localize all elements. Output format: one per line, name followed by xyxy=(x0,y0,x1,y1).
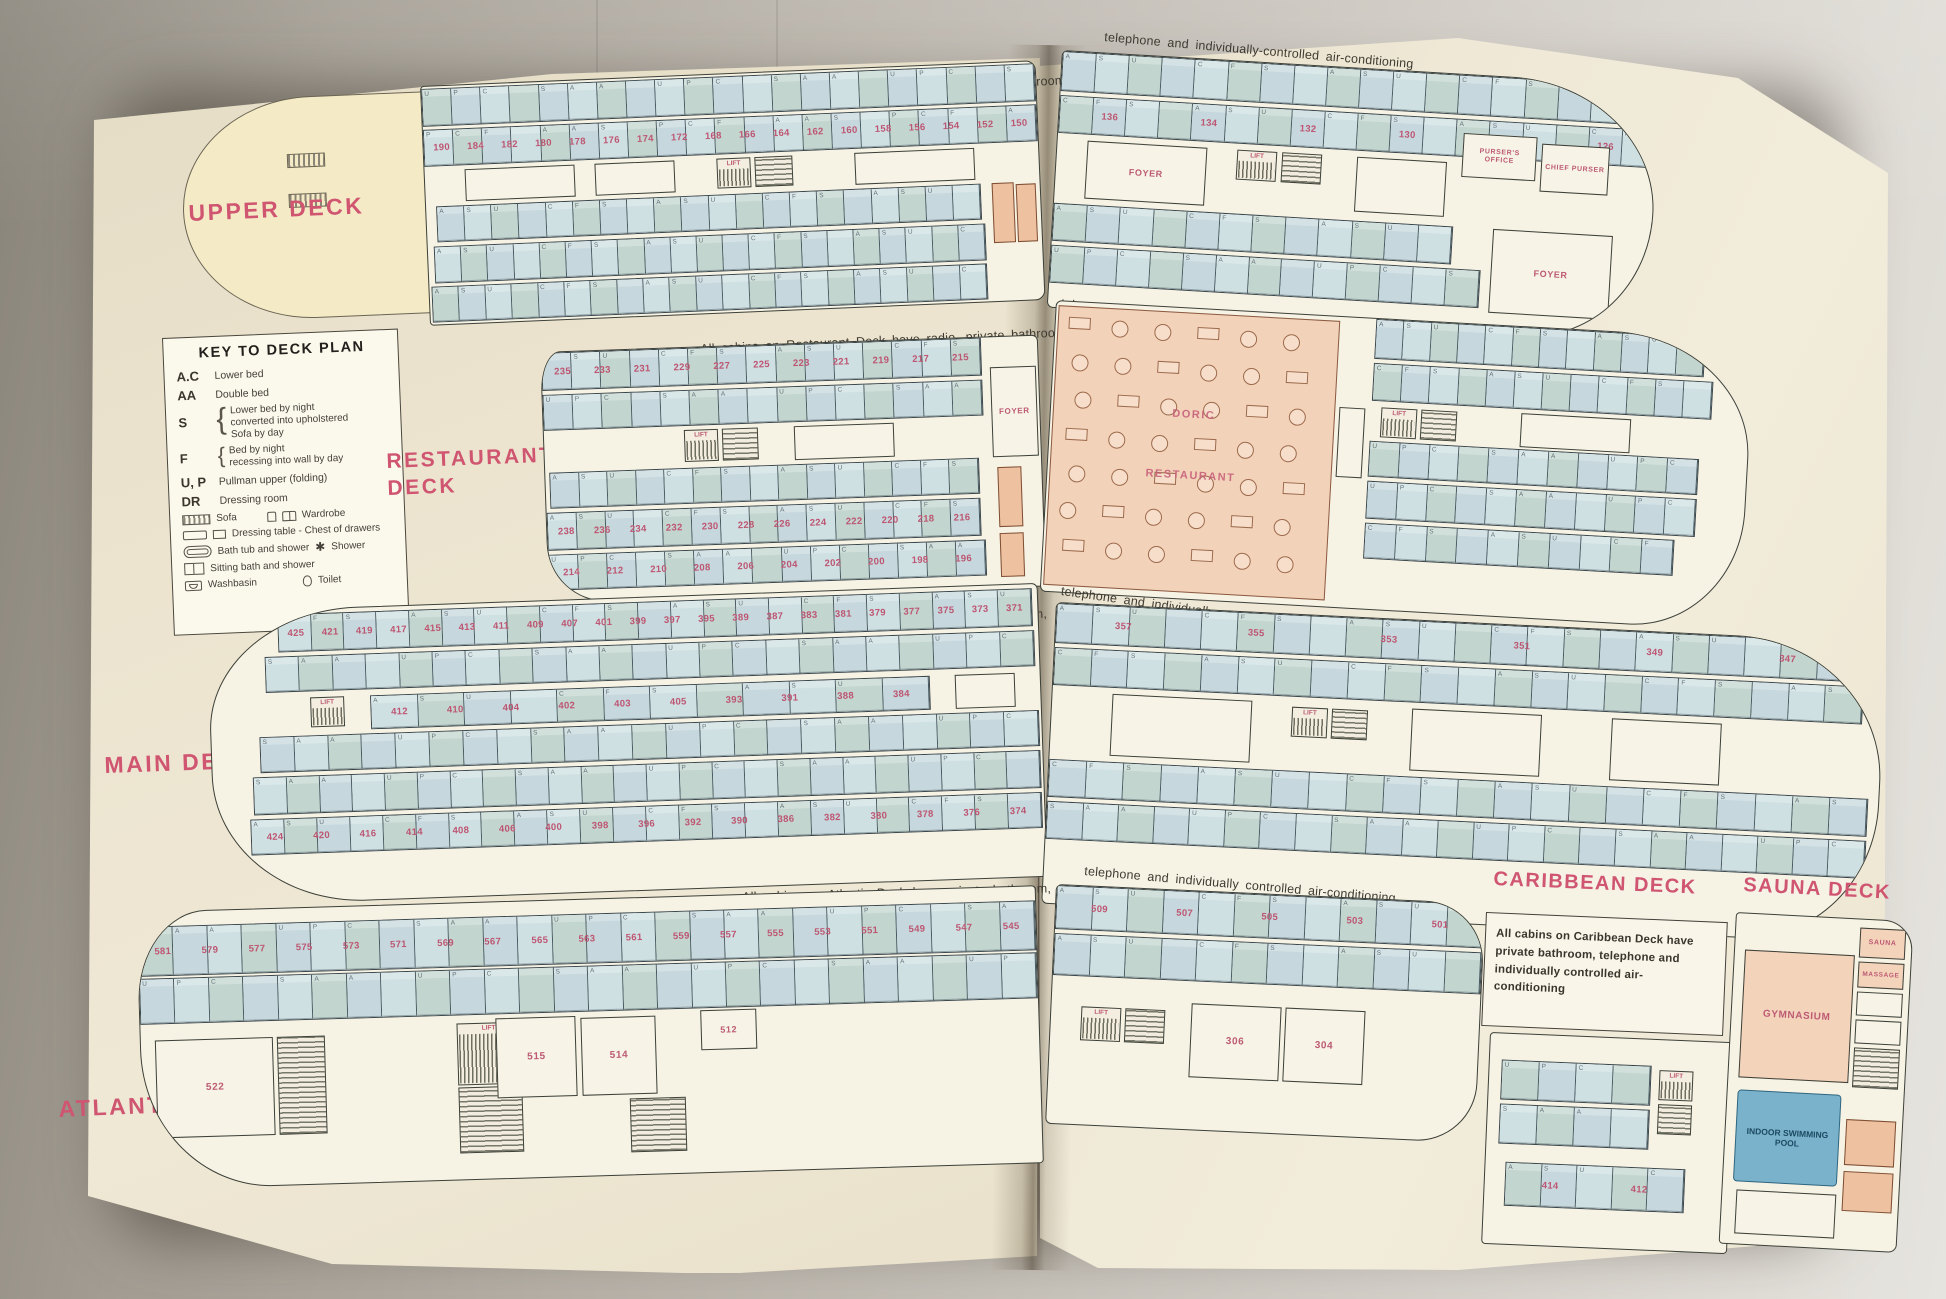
cabin-cell: P xyxy=(1083,248,1118,286)
sauna-deck-plan: GYMNASIUMSAUNAMASSAGEINDOOR SWIMMING POO… xyxy=(1719,912,1914,1253)
cabin-cell: A xyxy=(1247,257,1282,295)
cabin-cell: S xyxy=(1375,901,1412,945)
cabin-cell: U xyxy=(907,267,935,302)
dining-table xyxy=(1145,508,1163,526)
cabin-cell: A xyxy=(802,114,833,150)
cabin-cell: C xyxy=(1004,711,1039,746)
cabin-cell: U xyxy=(1648,335,1677,374)
cabin-cell: S xyxy=(1654,380,1684,418)
cabin-cell: F xyxy=(564,281,592,316)
lift-box: LIFT xyxy=(1080,1006,1122,1042)
room-outline: 304 xyxy=(1282,1008,1365,1086)
cabin-cell xyxy=(617,279,645,314)
cabin-cell xyxy=(1577,453,1609,489)
cabin-cell xyxy=(519,968,555,1013)
cabin-cell: P xyxy=(311,922,347,971)
cabin-cell xyxy=(748,388,778,423)
room-outline xyxy=(794,423,895,460)
room-label: 306 xyxy=(1226,1036,1245,1048)
cabin-cell: A xyxy=(1494,670,1532,708)
dining-table xyxy=(1157,361,1180,374)
cabin-cell: U xyxy=(487,244,515,280)
cabin-cell: U xyxy=(552,915,588,964)
dining-table xyxy=(1231,515,1254,528)
cabin-cell: F xyxy=(679,804,713,839)
cabin-cell: A xyxy=(566,646,601,681)
cabin-cell xyxy=(1417,225,1452,263)
cabin-cell xyxy=(768,719,803,754)
cabin-cell: A xyxy=(294,736,329,771)
cabin-cell: A xyxy=(869,716,904,751)
cabin-cell: A xyxy=(923,382,953,417)
sofa-icon xyxy=(182,514,210,525)
cabin-cell: S xyxy=(464,205,493,240)
cabin-cell: F xyxy=(1527,627,1565,667)
cabin-cell: C xyxy=(760,960,796,1005)
cabin-cell: C xyxy=(453,128,484,164)
cabin-cell: U xyxy=(1384,224,1419,262)
cabin-cell: U xyxy=(1604,495,1636,533)
key-code: DR xyxy=(181,493,220,510)
cabin-cell xyxy=(511,126,542,162)
cabin-cell: S xyxy=(965,902,1001,951)
dining-table xyxy=(1286,371,1309,384)
dining-table xyxy=(1059,502,1077,520)
cabin-cell xyxy=(863,342,893,379)
cabin-cell: P xyxy=(424,130,455,166)
cabin-cell: S xyxy=(650,685,698,719)
cabin-cell: U xyxy=(1418,622,1456,662)
cabin-cell: S xyxy=(1089,936,1126,978)
cabin-cell xyxy=(975,66,1006,103)
cabin-cell: P xyxy=(1508,824,1545,862)
cabin-cell: P xyxy=(917,68,948,105)
cabin-cell xyxy=(1579,828,1616,866)
cabin-cell: A xyxy=(1082,804,1119,842)
cabin-cell: F xyxy=(1383,776,1422,814)
atlantic-deck-plan-left: SAAUPCSAAUPCSAAUPCSA58157957757557357156… xyxy=(136,885,1044,1190)
dining-table xyxy=(1102,505,1125,518)
cabin-cell: A xyxy=(568,83,599,120)
cabin-cell xyxy=(1611,1167,1648,1210)
cabin-cell: F xyxy=(1091,650,1129,688)
cabin-cell xyxy=(513,243,541,279)
cabin-cell: F xyxy=(921,340,951,377)
cabin-cell: S xyxy=(605,603,639,640)
cabin-cell: S xyxy=(1267,944,1304,986)
dining-table xyxy=(1187,512,1205,530)
cabin-cell: S xyxy=(1092,606,1130,646)
cabin-cell: S xyxy=(547,809,581,844)
cabin-cell: S xyxy=(1091,888,1128,932)
cabin-cell: U xyxy=(1549,534,1582,570)
cabin-cell: S xyxy=(266,657,301,692)
cabin-cell: A xyxy=(1054,934,1091,976)
cabin-cell xyxy=(742,75,773,112)
cabin-cell: C xyxy=(1610,537,1643,573)
cabin-cell: A xyxy=(409,610,443,647)
cabin-cell xyxy=(932,226,960,262)
dining-table xyxy=(1071,354,1089,372)
cabin-cell: U xyxy=(835,503,865,540)
cabin-cell: A xyxy=(644,238,672,274)
cabin-cell: S xyxy=(831,113,862,149)
room-outline xyxy=(1520,413,1632,453)
cabin-cell: S xyxy=(681,196,710,231)
cabin-cell: S xyxy=(449,813,483,848)
restaurant-seating-area: DORICRESTAURANT xyxy=(1043,305,1340,600)
key-code: U, P xyxy=(181,474,220,491)
cabin-cell: S xyxy=(1351,222,1386,260)
cabin-cell xyxy=(614,765,648,802)
restaurant-deck-label: RESTAURANT DECK xyxy=(386,442,556,503)
cabin-cell: F xyxy=(573,604,607,641)
cabin-cell xyxy=(376,611,410,648)
washbasin-label: Washbasin xyxy=(208,577,258,590)
cabin-cell: A xyxy=(776,345,806,382)
washbasin-icon xyxy=(185,580,202,591)
key-code: F xyxy=(180,450,219,467)
dining-table xyxy=(1200,364,1218,382)
cabin-cell: A xyxy=(581,766,615,803)
staircase xyxy=(1124,1008,1166,1044)
cabin-cell xyxy=(512,283,540,318)
cabin-cell xyxy=(483,769,517,806)
cabin-cell: A xyxy=(778,465,808,500)
cabin-cell: S xyxy=(533,647,568,682)
room-label: PURSER'S OFFICE xyxy=(1463,147,1536,167)
cabin-cell: C xyxy=(763,193,792,228)
wardrobe-label: Wardrobe xyxy=(302,508,346,521)
cabin-cell: S xyxy=(665,551,695,586)
cabin-cell: P xyxy=(657,120,688,156)
service-room xyxy=(1841,1171,1893,1214)
cabin-cell: C xyxy=(1373,364,1403,402)
cabin-cell xyxy=(1456,529,1489,565)
cabin-cell: S xyxy=(1046,802,1083,840)
cabin-cell: C xyxy=(1575,1064,1614,1104)
key-code: AA xyxy=(177,387,216,404)
room-outline xyxy=(1609,718,1722,785)
cabin-cell: P xyxy=(811,546,841,581)
cabin-cell: P xyxy=(862,905,898,954)
cabin-cell xyxy=(1446,904,1483,948)
cabin-cell: S xyxy=(579,472,609,507)
cabin-cell xyxy=(1612,1065,1651,1105)
cabin-cell: F xyxy=(1817,641,1855,681)
cabin-cell xyxy=(632,724,667,759)
cabin-cell: U xyxy=(1313,261,1348,299)
bath-label: Bath tub and shower xyxy=(217,542,309,557)
cabin-cell: P xyxy=(806,386,836,421)
cabin-cell: F xyxy=(790,191,819,226)
cabin-cell xyxy=(1599,631,1637,671)
cabin-cell: F xyxy=(1491,78,1526,118)
cabin-cell xyxy=(1153,807,1190,845)
cabin-cell: A xyxy=(599,725,634,760)
cabin-cell xyxy=(1682,381,1712,419)
cabin-cell: U xyxy=(888,69,919,106)
shower-icon: ✱ xyxy=(315,541,326,553)
cabin-cell: A xyxy=(1000,901,1036,950)
room-outline xyxy=(1336,407,1366,478)
cabin-cell: S xyxy=(1524,80,1559,120)
cabin-cell: A xyxy=(1487,531,1520,567)
dining-table xyxy=(1197,327,1220,340)
upper-deck-plan-left: UPCSAAUPCSAAUPCSPCFAASPCFAASPCFA19018418… xyxy=(420,60,1046,326)
cabin-cell: F xyxy=(1231,942,1268,984)
cabin-cell: S xyxy=(898,543,928,578)
cabin-cell: A xyxy=(1056,886,1093,930)
cabin-cell xyxy=(1579,536,1612,572)
cabin-cell: P xyxy=(450,970,486,1015)
cabin-cell: A xyxy=(643,278,671,313)
cabin-cell: A xyxy=(1594,332,1623,371)
cabin-cell: C xyxy=(1324,112,1359,150)
cabin-cell: U xyxy=(708,195,737,230)
cabin-cell: F xyxy=(1218,214,1253,252)
cabin-cell: P xyxy=(966,632,1001,667)
cabin-cell: C xyxy=(646,806,680,841)
staircase xyxy=(277,1035,328,1134)
cabin-cell xyxy=(627,198,656,233)
cabin-cell xyxy=(749,506,779,543)
cabin-cell: A xyxy=(437,206,466,241)
cabin-cell: S xyxy=(461,245,489,281)
cabin-cell: P xyxy=(970,712,1005,747)
cabin-cell: C xyxy=(686,119,717,155)
cabin-cell: A xyxy=(371,695,419,729)
cabin-cell: U xyxy=(580,808,614,843)
cabin-cell: F xyxy=(416,814,450,849)
cabin-cell: P xyxy=(573,394,603,429)
cabin-cell: S xyxy=(1623,85,1658,125)
cabin-cell: C xyxy=(450,770,484,807)
cabin-cell: F xyxy=(1086,762,1125,800)
service-room xyxy=(992,182,1016,243)
cabin-cell: C xyxy=(733,640,768,675)
cabin-cell: S xyxy=(260,737,295,772)
cabin-cell: S xyxy=(1539,329,1568,368)
cabin-cell: F xyxy=(1237,613,1275,653)
cabin-cell xyxy=(630,350,660,387)
cabin-cell: A xyxy=(853,229,881,265)
cabin-cell xyxy=(1293,66,1328,106)
sitting-bath-label: Sitting bath and shower xyxy=(210,559,315,574)
cabin-cell: A xyxy=(952,381,982,416)
cabin-cell: S xyxy=(1260,64,1295,104)
cabin-cell: A xyxy=(1338,947,1375,989)
cabin-cell: F xyxy=(1227,62,1262,102)
cabin-cell xyxy=(766,639,801,674)
cabin-cell: C xyxy=(209,977,245,1022)
cabin-cell xyxy=(618,239,646,275)
cabin-cell: C xyxy=(480,86,511,123)
cabin-cell: S xyxy=(1373,949,1410,991)
hatch-grille xyxy=(287,153,326,169)
cabin-cell xyxy=(750,466,780,501)
cabin-cell: S xyxy=(1714,680,1752,718)
cabin-cell: P xyxy=(699,642,734,677)
cabin-cell: S xyxy=(531,728,566,763)
cabin-cell: U xyxy=(908,754,942,791)
cabin-cell: A xyxy=(671,601,705,638)
cabin-cell xyxy=(1160,939,1197,981)
cabin-cell xyxy=(900,635,935,670)
room-outline: CHIEF PURSER xyxy=(1539,144,1610,196)
cabin-cell: C xyxy=(540,605,574,642)
cabin-cell xyxy=(977,106,1008,142)
cabin-cell: C xyxy=(959,264,987,299)
cabin-cell: S xyxy=(880,268,908,303)
cabin-cell: A xyxy=(597,81,628,118)
room-label: 512 xyxy=(720,1024,737,1035)
cabin-cell xyxy=(769,597,803,634)
lift-box: LIFT xyxy=(310,696,345,727)
cabin-cell xyxy=(366,653,401,688)
key-code: A.C xyxy=(176,368,215,385)
cabin-cell xyxy=(1754,794,1793,832)
cabin-cell: S xyxy=(720,507,750,544)
cabin-cell: F xyxy=(603,687,651,721)
cabin-cell xyxy=(828,270,856,305)
cabin-cell: S xyxy=(1672,634,1710,674)
cabin-cell: A xyxy=(1788,684,1826,722)
cabin-cell: C xyxy=(802,596,836,633)
cabin-cell: A xyxy=(689,390,719,425)
cabin-cell: A xyxy=(287,776,321,813)
lift-box: LIFT xyxy=(684,429,719,462)
cabin-cell: S xyxy=(807,464,837,499)
cabin-cell: P xyxy=(700,722,735,757)
cabin-cell: C xyxy=(1054,648,1092,686)
cabin-cell: C xyxy=(1185,212,1220,250)
room-label: CHIEF PURSER xyxy=(1545,164,1605,176)
cabin-strip: SAA xyxy=(1498,1103,1650,1149)
cabin-cell: A xyxy=(1318,220,1353,258)
cabin-cell: C xyxy=(1059,96,1094,134)
staircase xyxy=(1852,1047,1900,1089)
dining-table xyxy=(1233,552,1251,570)
cabin-cell xyxy=(746,346,776,383)
lift-box: LIFT xyxy=(1380,407,1418,439)
cabin-cell xyxy=(507,606,541,643)
cabin-cell: A xyxy=(1545,492,1577,530)
dining-table xyxy=(1065,428,1088,441)
cabin-cell: C xyxy=(1598,376,1628,414)
cabin-cell: U xyxy=(1409,950,1446,992)
cabin-cell xyxy=(380,920,416,969)
dining-table xyxy=(1105,542,1123,560)
restaurant-name: RESTAURANT xyxy=(1050,462,1330,490)
cabin-cell: U xyxy=(1708,636,1746,676)
cabin-cell xyxy=(1295,814,1332,852)
cabin-cell: A xyxy=(299,656,334,691)
public-room-area: SAUNA xyxy=(1859,928,1907,960)
cabin-cell: U xyxy=(1473,823,1510,861)
cabin-cell: U xyxy=(691,963,727,1008)
cabin-cell xyxy=(352,774,386,811)
cabin-cell: U xyxy=(1128,608,1166,648)
key-desc: Lower bed xyxy=(214,367,263,381)
cabin-cell: U xyxy=(605,511,635,548)
cabin-cell: A xyxy=(1201,655,1239,693)
cabin-cell: A xyxy=(830,72,861,109)
cabin-cell: U xyxy=(933,633,968,668)
cabin-cell: A xyxy=(540,125,571,161)
cabin-cell: S xyxy=(459,285,487,320)
cabin-cell: C xyxy=(958,224,986,260)
cabin-cell xyxy=(1310,616,1348,656)
cabin-cell: F xyxy=(1233,894,1270,938)
cabin-cell: F xyxy=(1384,664,1422,702)
cabin-cell: S xyxy=(1331,816,1368,854)
cabin-cell xyxy=(1610,1109,1649,1149)
room-outline xyxy=(1110,694,1253,763)
cabin-cell xyxy=(362,733,397,768)
cabin-cell: U xyxy=(399,652,434,687)
cabin-cell: P xyxy=(432,651,467,686)
dressing-label: Dressing table - Chest of drawers xyxy=(232,522,381,539)
cabin-cell: C xyxy=(539,242,567,278)
cabin-cell: S xyxy=(811,800,845,835)
cabin-cell xyxy=(1304,897,1341,941)
cabin-cell: C xyxy=(734,720,769,755)
cabin-cell xyxy=(903,715,938,750)
cabin-cell: S xyxy=(1621,334,1650,373)
cabin-cell xyxy=(745,760,779,797)
cabin-cell xyxy=(636,470,666,505)
cabin-cell: A xyxy=(483,917,519,966)
key-desc-multiline: Bed by nightrecessing into wall by day xyxy=(229,441,344,470)
cabin-cell: F xyxy=(1357,114,1392,152)
cabin-cell: U xyxy=(600,351,630,388)
cabin-cell xyxy=(844,189,873,224)
cabin-cell: P xyxy=(726,962,762,1007)
cabin-cell xyxy=(1457,780,1496,818)
cabin-cell: S xyxy=(721,467,751,502)
cabin-cell: S xyxy=(1251,216,1286,254)
service-room xyxy=(1016,183,1038,242)
cabin-strip: ASUC414412 xyxy=(1504,1162,1686,1213)
cabin-cell: S xyxy=(344,612,378,649)
cabin-cell xyxy=(736,194,765,229)
cabin-cell: S xyxy=(591,280,619,315)
cabin-cell: U xyxy=(544,395,574,430)
dining-table xyxy=(1243,368,1261,386)
cabin-cell: C xyxy=(919,109,950,145)
cabin-cell: S xyxy=(951,499,981,536)
cabin-cell: A xyxy=(724,910,760,959)
cabin-cell: S xyxy=(703,599,737,636)
service-room xyxy=(1000,532,1026,577)
toilet-label: Toilet xyxy=(318,574,342,586)
cabin-cell: U xyxy=(998,589,1032,626)
cabin-cell: P xyxy=(429,731,464,766)
cabin-cell xyxy=(1423,118,1458,156)
service-room xyxy=(997,466,1023,527)
cabin-cell: A xyxy=(956,541,986,576)
cabin-cell: S xyxy=(801,271,829,306)
cabin-cell: S xyxy=(1123,764,1162,802)
public-room-area: MASSAGE xyxy=(1857,961,1904,989)
cabin-cell: C xyxy=(1194,60,1229,100)
cabin-cell xyxy=(1721,835,1758,873)
cabin-cell xyxy=(1152,210,1187,248)
cabin-cell xyxy=(1557,82,1592,122)
cabin-cell: C xyxy=(1379,265,1414,303)
cabin-cell: U xyxy=(1189,809,1226,847)
